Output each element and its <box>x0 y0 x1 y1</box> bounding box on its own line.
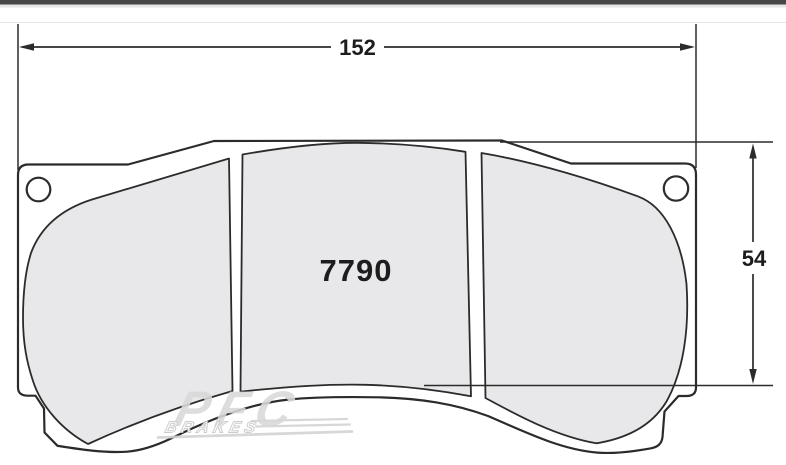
width-dim-arrow-right-icon <box>680 43 695 51</box>
mounting-hole-left <box>27 178 51 202</box>
mounting-hole-right <box>664 176 688 200</box>
width-dimension-label: 152 <box>339 35 376 60</box>
part-number-label: 7790 <box>320 253 393 288</box>
page-top-edge-bar <box>0 0 786 5</box>
drawing-svg: 152 54 7790 PFC BRAKES <box>0 0 786 465</box>
width-dim-arrow-left-icon <box>19 43 34 51</box>
page-top-edge-fringe <box>0 5 786 8</box>
height-dimension-label: 54 <box>742 246 767 271</box>
height-dim-arrow-down-icon <box>749 369 756 384</box>
watermark-sub-text: BRAKES <box>163 419 262 437</box>
brake-pad-technical-drawing: 152 54 7790 PFC BRAKES <box>0 0 786 465</box>
height-dim-arrow-up-icon <box>749 144 756 159</box>
